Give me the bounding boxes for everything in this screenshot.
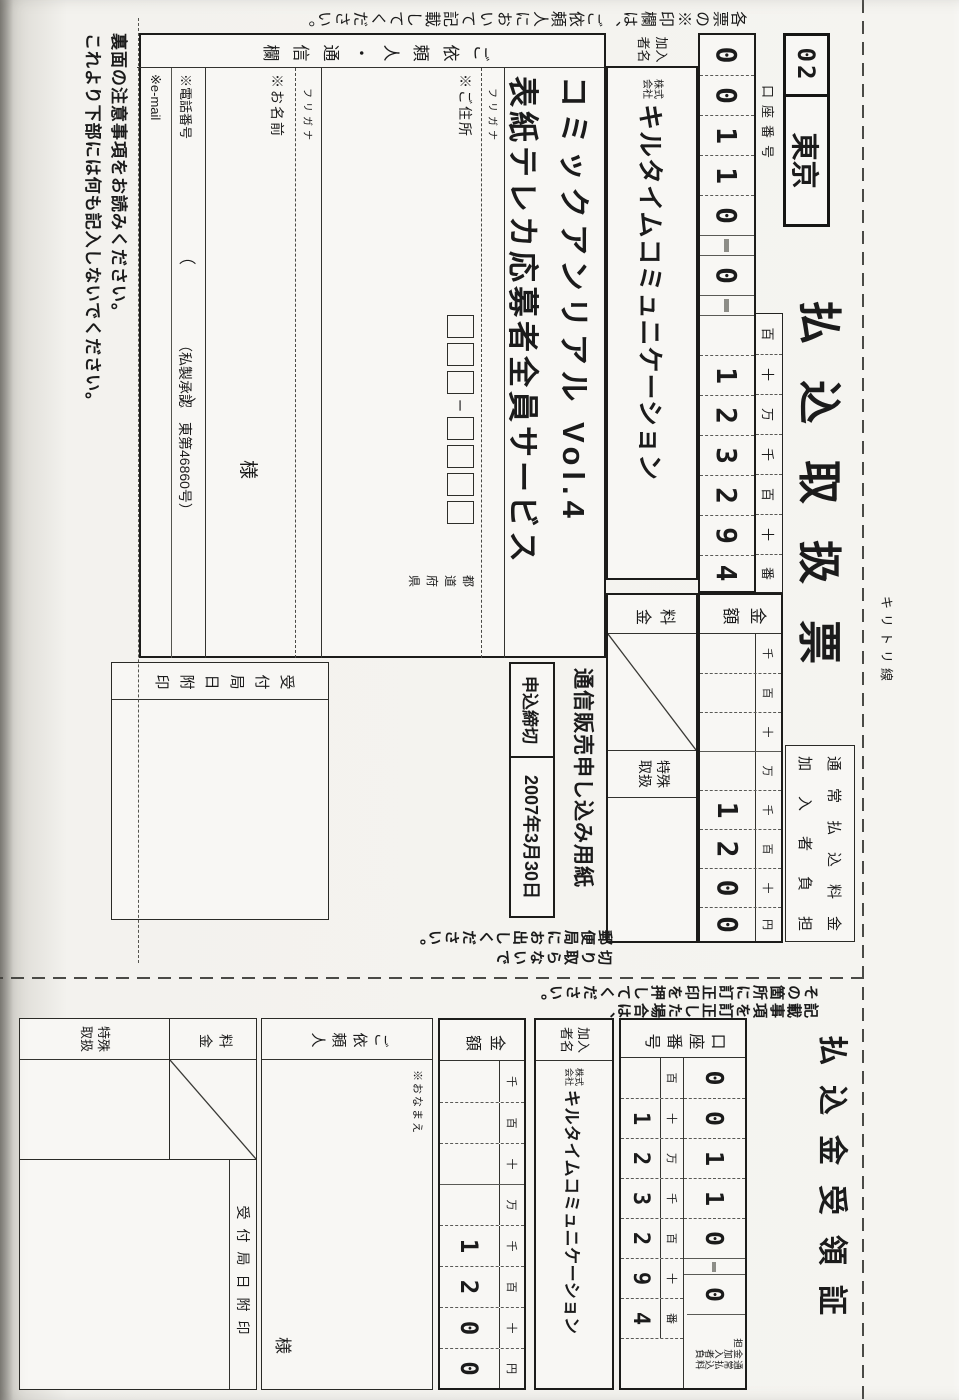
diagonal-line <box>608 634 696 750</box>
account-digit: 0 <box>700 195 754 235</box>
payment-form-sheet: キリトリ線 各票の※印欄は、ご依頼人において記載してください。 払込取扱票 02… <box>0 0 959 1400</box>
postal-code-box[interactable] <box>447 343 474 366</box>
honorific: 様 <box>272 1337 297 1354</box>
slip-account-section: 口座番号 百 十 万 千 百 十 番 0 0 1 1 0 0 <box>698 33 783 593</box>
amount-header: 百 <box>755 830 781 868</box>
account-digit: 1 <box>700 115 754 155</box>
receipt-title: 払込金受領証 <box>813 1035 857 1335</box>
place-header: 十 <box>660 1259 683 1298</box>
account-separator <box>700 235 754 255</box>
amount-header: 十 <box>755 713 781 751</box>
client-section-label: ご依頼人・通信欄 <box>137 35 604 68</box>
email-label: ※e-mail <box>147 74 163 120</box>
deadline-label: 申込締切 <box>511 664 553 758</box>
amount-header: 十 <box>499 1144 524 1184</box>
amount-header: 百 <box>499 1267 524 1307</box>
postal-code-box[interactable] <box>447 445 474 468</box>
account-digit: 1 <box>684 1178 745 1218</box>
account-digit: 1 <box>621 1099 660 1138</box>
account-digit: 2 <box>621 1219 660 1258</box>
account-place-headers: 百 十 万 千 百 十 番 <box>756 313 783 593</box>
deadline-box: 申込締切 2007年3月30日 <box>509 662 555 918</box>
amount-digit: 1 <box>700 791 755 829</box>
name-label: ※おなまえ <box>410 1070 426 1135</box>
postal-code-separator: ー <box>451 399 470 412</box>
amount-header: 千 <box>755 634 781 673</box>
place-header: 十 <box>660 1099 683 1138</box>
approval-note: （私製承認 東第46860号） <box>175 338 195 517</box>
account-digit: 2 <box>621 1139 660 1178</box>
stamp-label: 受付局日附印 <box>229 1160 256 1389</box>
receipt-bottom-block: 料金 特殊取扱 受付局日附印 <box>19 1018 257 1390</box>
special-handling-label: 特殊取扱 <box>20 1019 169 1060</box>
company-prefix: 株式会社 <box>564 1067 585 1087</box>
account-digit: 4 <box>621 1299 660 1338</box>
receipt-amount-row: 金額 千 百 十 万 千1 百2 十0 円0 <box>438 1018 526 1390</box>
payee-name-box: 株式会社 キルタイムコミュニケーション <box>606 66 698 580</box>
fee-note-line1: 通常払込料金 <box>824 756 845 931</box>
amount-digit: 2 <box>700 830 755 868</box>
place-header: 番 <box>660 1299 683 1338</box>
postal-code-box[interactable] <box>447 417 474 440</box>
amount-digit <box>440 1185 499 1225</box>
amount-header: 万 <box>499 1185 524 1225</box>
postal-code-box[interactable] <box>447 501 474 524</box>
account-digit: 3 <box>700 435 754 475</box>
account-digit: 4 <box>700 555 754 590</box>
account-digit: 3 <box>621 1179 660 1218</box>
place-header: 十 <box>756 514 782 554</box>
receipt-account-section: 口座番号 0 0 1 1 0 0 通常払込料金加入者負担 百 十1 万2 千3 … <box>619 1018 747 1390</box>
place-header: 番 <box>756 554 782 592</box>
slip-amount-section: 金額 千 百 十 万 千1 百2 十0 円0 <box>698 593 783 943</box>
paren-open: （ <box>176 248 201 265</box>
account-separator <box>700 295 754 315</box>
account-number-label: 口座番号 <box>621 1020 745 1058</box>
bank-name-box: 東京 <box>783 94 830 227</box>
amount-header: 百 <box>755 674 781 712</box>
postal-code-box[interactable] <box>447 371 474 394</box>
amount-header: 円 <box>755 908 781 941</box>
receipt-client-row: ご依頼人 ※おなまえ 様 <box>261 1018 433 1390</box>
account-digit: 0 <box>700 255 754 295</box>
company-prefix: 株式会社 <box>641 78 664 100</box>
account-digit: 0 <box>700 75 754 115</box>
amount-digit: 0 <box>700 869 755 907</box>
place-header: 百 <box>660 1219 683 1258</box>
amount-digit: 2 <box>440 1267 499 1307</box>
slip-title: 払込取扱票 <box>791 300 855 700</box>
account-digit: 9 <box>700 515 754 555</box>
receipt-stamp-box: 受付局日附印 <box>19 1160 257 1390</box>
fee-field[interactable] <box>170 1060 256 1159</box>
product-title-line2: 表紙テレカ応募者全員サービス <box>503 76 548 566</box>
cut-line-horizontal <box>862 0 864 1400</box>
payee-company-name: キルタイムコミュニケーション <box>634 104 671 481</box>
amount-digit: 0 <box>700 908 755 941</box>
account-digit: 1 <box>684 1138 745 1178</box>
bottom-note2: これより下部には何も記入しないでください。 <box>82 33 107 410</box>
payee-company-name: キルタイムコミュニケーション <box>562 1090 587 1334</box>
furigana-row[interactable]: フリガナ <box>295 68 321 658</box>
cut-line-label: キリトリ線 <box>878 596 897 686</box>
account-digit: 0 <box>684 1274 745 1314</box>
address-field[interactable]: ※ご住所 ー 都道府県 <box>321 68 481 658</box>
amount-header: 千 <box>755 791 781 829</box>
account-digit: 0 <box>684 1058 745 1098</box>
prefecture-label: 都道府県 <box>405 572 477 596</box>
amount-label: 金額 <box>440 1020 524 1061</box>
place-header: 百 <box>660 1058 683 1098</box>
account-separator <box>684 1258 745 1274</box>
account-digit <box>621 1058 660 1098</box>
fee-note-box: 通常払込料金 加入者負担 <box>785 745 855 942</box>
amount-header: 千 <box>499 1226 524 1266</box>
stamp-field[interactable] <box>19 1160 229 1389</box>
account-number-label: 口座番号 <box>759 85 778 165</box>
bank-code-box: 02 <box>783 33 830 97</box>
place-header: 百 <box>756 474 782 514</box>
amount-header: 千 <box>499 1061 524 1102</box>
fee-note-line2: 加入者負担 <box>795 756 816 931</box>
stamp-field[interactable] <box>112 700 328 919</box>
receipt-fee-row: 料金 <box>169 1018 257 1160</box>
receipt-fee-note: 通常払込料金加入者負担 <box>687 1314 745 1388</box>
account-digit: 0 <box>684 1098 745 1138</box>
amount-header: 円 <box>499 1349 524 1388</box>
amount-digit <box>440 1144 499 1184</box>
special-handling-field[interactable] <box>608 798 696 941</box>
scanned-form-page: キリトリ線 各票の※印欄は、ご依頼人において記載してください。 払込取扱票 02… <box>0 0 959 1400</box>
address-label: ※ご住所 <box>455 74 475 138</box>
account-digit <box>700 315 754 355</box>
receipt-account-row1: 0 0 1 1 0 0 通常払込料金加入者負担 <box>683 1058 745 1388</box>
amount-header: 十 <box>755 869 781 907</box>
amount-header: 万 <box>755 752 781 790</box>
payee-label: 加入者名 <box>606 33 698 66</box>
cut-note-line2: 郵便局にお出しください。 <box>313 926 613 947</box>
amount-label: 金額 <box>700 595 781 634</box>
place-header: 十 <box>756 354 782 394</box>
phone-label: ※電話番号 <box>177 74 196 139</box>
payee-label: 加入者名 <box>536 1020 612 1061</box>
place-header: 千 <box>660 1179 683 1218</box>
receipt-special-row: 特殊取扱 <box>19 1018 169 1160</box>
name-label: ※お名前 <box>267 74 287 138</box>
slip-stamp-box: 受付局日附印 <box>111 662 329 920</box>
furigana-row[interactable]: フリガナ <box>481 68 505 658</box>
slip-edge-note: 各票の※印欄は、ご依頼人において記載してください。 <box>247 4 747 28</box>
deadline-value: 2007年3月30日 <box>511 758 553 916</box>
postal-code-box[interactable] <box>447 473 474 496</box>
client-box: ご依頼人・通信欄 コミックアンリアル Vol.4 表紙テレカ応募者全員サービス … <box>139 33 606 658</box>
email-field[interactable]: ※e-mail <box>137 68 171 658</box>
account-digit: 2 <box>700 395 754 435</box>
fee-field[interactable] <box>608 634 696 751</box>
bottom-note1: 裏面の注意事項をお読みください。 <box>108 33 133 321</box>
place-header: 千 <box>756 434 782 474</box>
postal-code-box[interactable] <box>447 315 474 338</box>
cut-note-line1: 切り取らないで <box>313 946 613 967</box>
cut-line-vertical <box>0 977 864 979</box>
special-handling-field[interactable] <box>20 1060 169 1159</box>
amount-digit: 1 <box>440 1226 499 1266</box>
bottom-dashed-line <box>138 18 139 963</box>
amount-header: 百 <box>499 1103 524 1143</box>
amount-digit[interactable] <box>700 674 755 712</box>
amount-header: 十 <box>499 1308 524 1348</box>
account-digit: 9 <box>621 1259 660 1298</box>
receipt-edge-note1: 記載事項を訂正した場合は、 <box>399 999 819 1020</box>
order-form-label: 通信販売申し込み用紙 <box>569 668 599 888</box>
amount-digit <box>440 1103 499 1143</box>
client-label: ご依頼人 <box>262 1019 432 1060</box>
fee-label: 料金 <box>608 595 696 634</box>
stamp-label: 受付局日附印 <box>112 663 328 700</box>
amount-digit[interactable] <box>700 634 755 673</box>
amount-digit[interactable] <box>700 752 755 790</box>
diagonal-line <box>170 1060 256 1159</box>
product-title-line1: コミックアンリアル Vol.4 <box>554 76 599 524</box>
account-digit: 0 <box>684 1218 745 1258</box>
postal-code-boxes[interactable]: ー <box>447 315 474 524</box>
furigana-label: フリガナ <box>486 88 501 144</box>
place-header: 万 <box>756 394 782 434</box>
account-digit: 1 <box>700 355 754 395</box>
receipt-edge-note2: その箇所に訂正印を押してください。 <box>399 981 819 1002</box>
amount-digit[interactable] <box>700 713 755 751</box>
place-header: 万 <box>660 1139 683 1178</box>
special-handling-label: 特殊取扱 <box>608 751 696 798</box>
name-field[interactable]: ※お名前 様 <box>205 68 295 658</box>
fee-special-row: 料金 特殊取扱 <box>606 593 698 943</box>
amount-digit: 0 <box>440 1349 499 1388</box>
furigana-label: フリガナ <box>301 88 316 144</box>
honorific: 様 <box>236 460 263 479</box>
place-header: 百 <box>756 314 782 354</box>
account-digit: 0 <box>700 35 754 75</box>
account-digit: 2 <box>700 475 754 515</box>
fee-label: 料金 <box>170 1019 256 1060</box>
amount-digit: 0 <box>440 1308 499 1348</box>
receipt-name-field[interactable]: ※おなまえ 様 <box>262 1060 432 1389</box>
account-digit-strip: 0 0 1 1 0 0 1 2 3 2 9 4 <box>698 33 756 593</box>
account-digit: 1 <box>700 155 754 195</box>
receipt-payee-row: 加入者名 株式会社 キルタイムコミュニケーション <box>534 1018 614 1390</box>
amount-digit <box>440 1061 499 1102</box>
